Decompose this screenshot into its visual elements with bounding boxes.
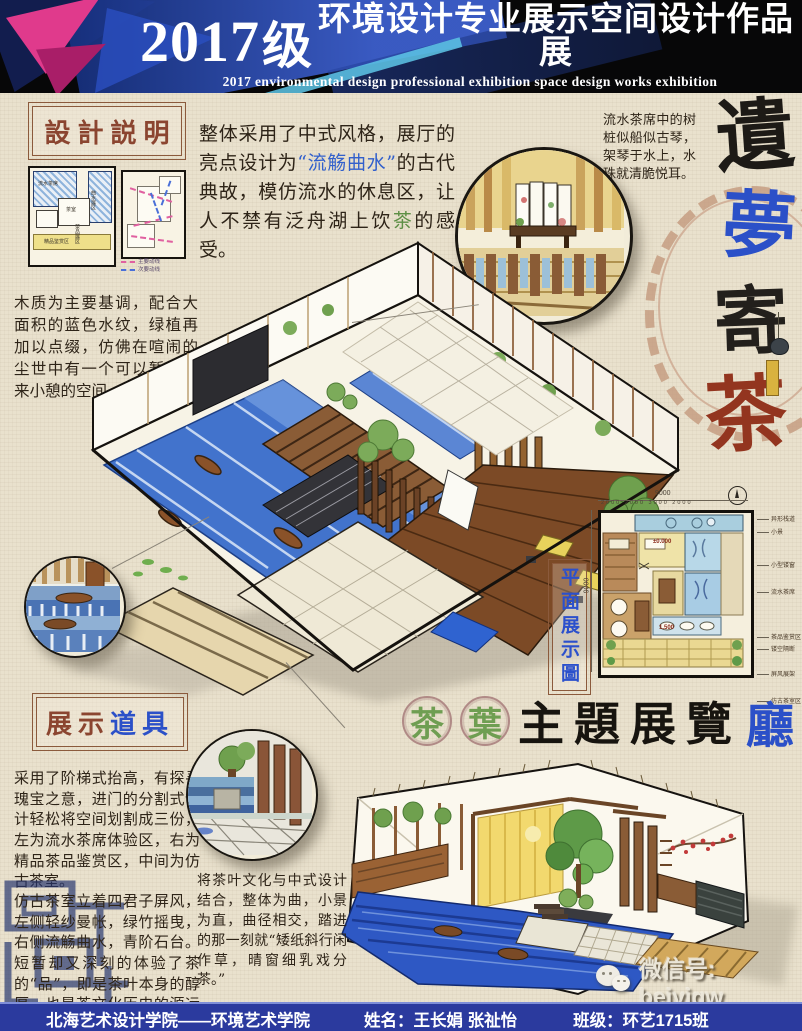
plan-label: 平面展示圖 xyxy=(556,567,583,687)
wechat-icon xyxy=(596,965,631,997)
plan-annotation: 流水茶席 xyxy=(757,587,795,596)
footer-school: 北海艺术设计学院——环境艺术学院 xyxy=(46,1007,310,1031)
props-heading-box: 展示道具 xyxy=(36,697,184,747)
plan-annotation: 屏风展架 xyxy=(757,669,795,678)
header-banner: 2017 级 环境设计专业展示空间设计作品展 2017 environmenta… xyxy=(0,0,802,93)
plan-dim-parts: 2000 2000 3000 2000 xyxy=(601,500,693,506)
hall-title-badge-1: 茶 xyxy=(402,696,452,746)
zoning-label: 流水茶席 xyxy=(38,180,58,187)
plan-annotation: 镂空隔断 xyxy=(757,644,795,653)
floor-plan-block: 9000 2000 2000 3000 2000 9000 xyxy=(585,486,802,688)
zoning-label: 曲水展区 xyxy=(90,190,97,210)
zoning-small-room xyxy=(36,210,58,228)
plan-annotation: 异形栈道 xyxy=(757,514,795,523)
calligraphy-char-1: 遺 xyxy=(713,95,796,178)
plan-dim-total: 9000 xyxy=(655,490,671,497)
closing-note: 将茶叶文化与中式设计结合，整体为曲，小景为直，曲径相交，踏进的那一刻就“矮纸斜行… xyxy=(197,872,347,991)
poster-title: 2017 级 环境设计专业展示空间设计作品展 2017 environmenta… xyxy=(140,2,800,90)
water-seat-detail-inset xyxy=(24,556,126,658)
floor-plan-drawing: ±0.000 1.500 xyxy=(598,510,754,678)
poster: 2017 级 环境设计专业展示空间设计作品展 2017 environmenta… xyxy=(0,0,802,1031)
slat-partition-detail-inset xyxy=(186,729,318,861)
bell-string xyxy=(778,312,779,338)
hall-title: 茶 葉 主題展覽 廳 xyxy=(402,686,794,756)
title-year: 2017 xyxy=(140,13,260,71)
zoning-label: 茶室 xyxy=(66,206,76,213)
plan-annotation: 小型镂窗 xyxy=(757,560,795,569)
design-note-heading-box: 設計説明 xyxy=(32,106,182,156)
footer-class: 班级：环艺1715班 xyxy=(573,1007,709,1031)
hall-title-accent: 廳 xyxy=(746,686,794,756)
plan-label-box: 平面展示圖 xyxy=(552,563,587,691)
footer-student-names: 姓名：王长娟 张祉怡 xyxy=(364,1007,517,1031)
title-en: 2017 environmental design professional e… xyxy=(140,74,800,90)
plan-annotation: 小景 xyxy=(757,527,783,536)
hanging-tag xyxy=(766,360,779,396)
plan-level-mark: 1.500 xyxy=(659,625,674,631)
circulation-room xyxy=(159,176,181,194)
design-note-heading: 設計説明 xyxy=(37,113,176,150)
calligraphy-char-2: 夢 xyxy=(720,188,798,266)
hall-title-badge-2: 葉 xyxy=(460,696,510,746)
title-grade: 级 xyxy=(262,21,312,71)
footer-bar: 北海艺术设计学院——环境艺术学院 姓名：王长娟 张祉怡 班级：环艺1715班 xyxy=(0,1002,802,1031)
bell-icon xyxy=(770,338,789,355)
plan-level-mark: ±0.000 xyxy=(653,539,671,545)
north-arrow-icon xyxy=(728,486,747,505)
side-note: 流水茶席中的树桩似船似古琴，架琴于水上，水珠就清脆悦耳。 xyxy=(603,112,696,184)
props-heading-a: 展示 xyxy=(46,710,110,740)
plan-annotation: 茶品鉴赏区 xyxy=(757,632,801,641)
hall-title-main: 主題展覽 xyxy=(518,688,742,754)
intro-highlight-green: 茶 xyxy=(393,210,415,232)
title-cn: 环境设计专业展示空间设计作品展 xyxy=(312,2,800,71)
props-heading-b: 道具 xyxy=(110,710,174,740)
dim-line xyxy=(591,510,592,672)
intro-highlight-blue: “流觞曲水” xyxy=(297,152,396,174)
plan-dim-left: 9000 xyxy=(583,578,590,594)
